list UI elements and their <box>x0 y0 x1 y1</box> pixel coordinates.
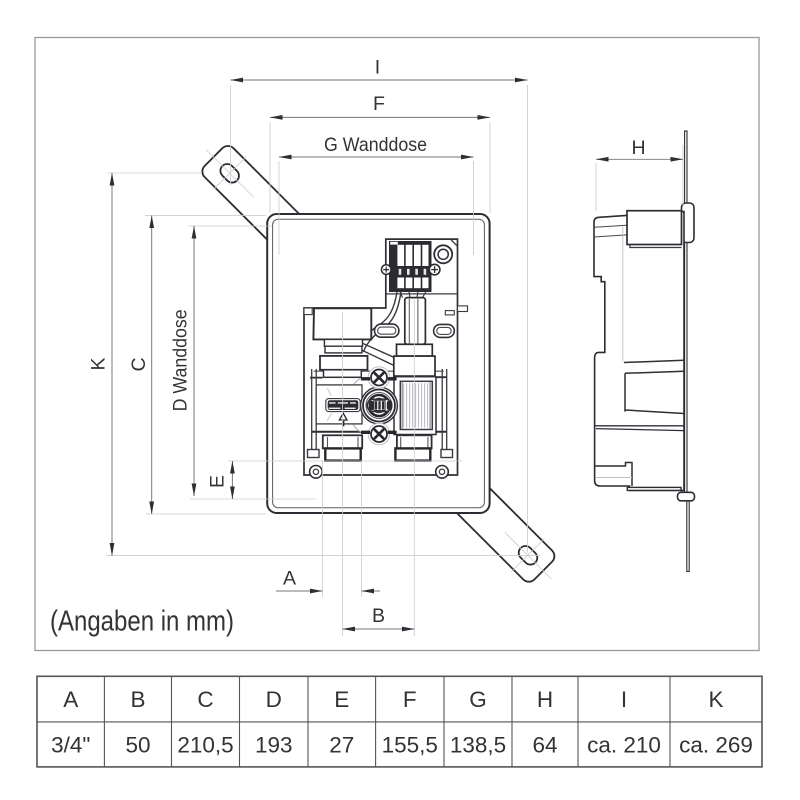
svg-text:H: H <box>631 137 645 159</box>
svg-text:64: 64 <box>532 733 557 758</box>
svg-text:ca. 210: ca. 210 <box>587 733 661 758</box>
svg-text:F: F <box>373 93 385 115</box>
svg-text:A: A <box>283 568 296 590</box>
svg-text:C: C <box>128 357 150 371</box>
svg-text:B: B <box>130 687 145 712</box>
svg-text:D: D <box>266 687 282 712</box>
svg-text:27: 27 <box>329 733 354 758</box>
svg-text:G Wanddose: G Wanddose <box>324 134 427 156</box>
svg-text:E: E <box>207 475 229 488</box>
svg-text:210,5: 210,5 <box>177 733 233 758</box>
svg-text:I: I <box>621 687 627 712</box>
svg-text:C: C <box>197 687 213 712</box>
svg-text:K: K <box>708 687 723 712</box>
svg-text:B: B <box>372 605 385 627</box>
svg-text:ca. 269: ca. 269 <box>679 733 753 758</box>
svg-text:E: E <box>334 687 349 712</box>
svg-text:50: 50 <box>125 733 150 758</box>
svg-text:3/4": 3/4" <box>51 733 90 758</box>
svg-text:H: H <box>537 687 553 712</box>
svg-text:193: 193 <box>255 733 293 758</box>
svg-text:D Wanddose: D Wanddose <box>170 309 192 411</box>
svg-text:F: F <box>403 687 417 712</box>
svg-text:K: K <box>88 357 110 370</box>
svg-text:G: G <box>469 687 487 712</box>
svg-text:A: A <box>63 687 78 712</box>
svg-text:(Angaben in mm): (Angaben in mm) <box>50 605 234 637</box>
svg-text:138,5: 138,5 <box>450 733 506 758</box>
svg-text:I: I <box>375 57 380 79</box>
svg-text:155,5: 155,5 <box>382 733 438 758</box>
